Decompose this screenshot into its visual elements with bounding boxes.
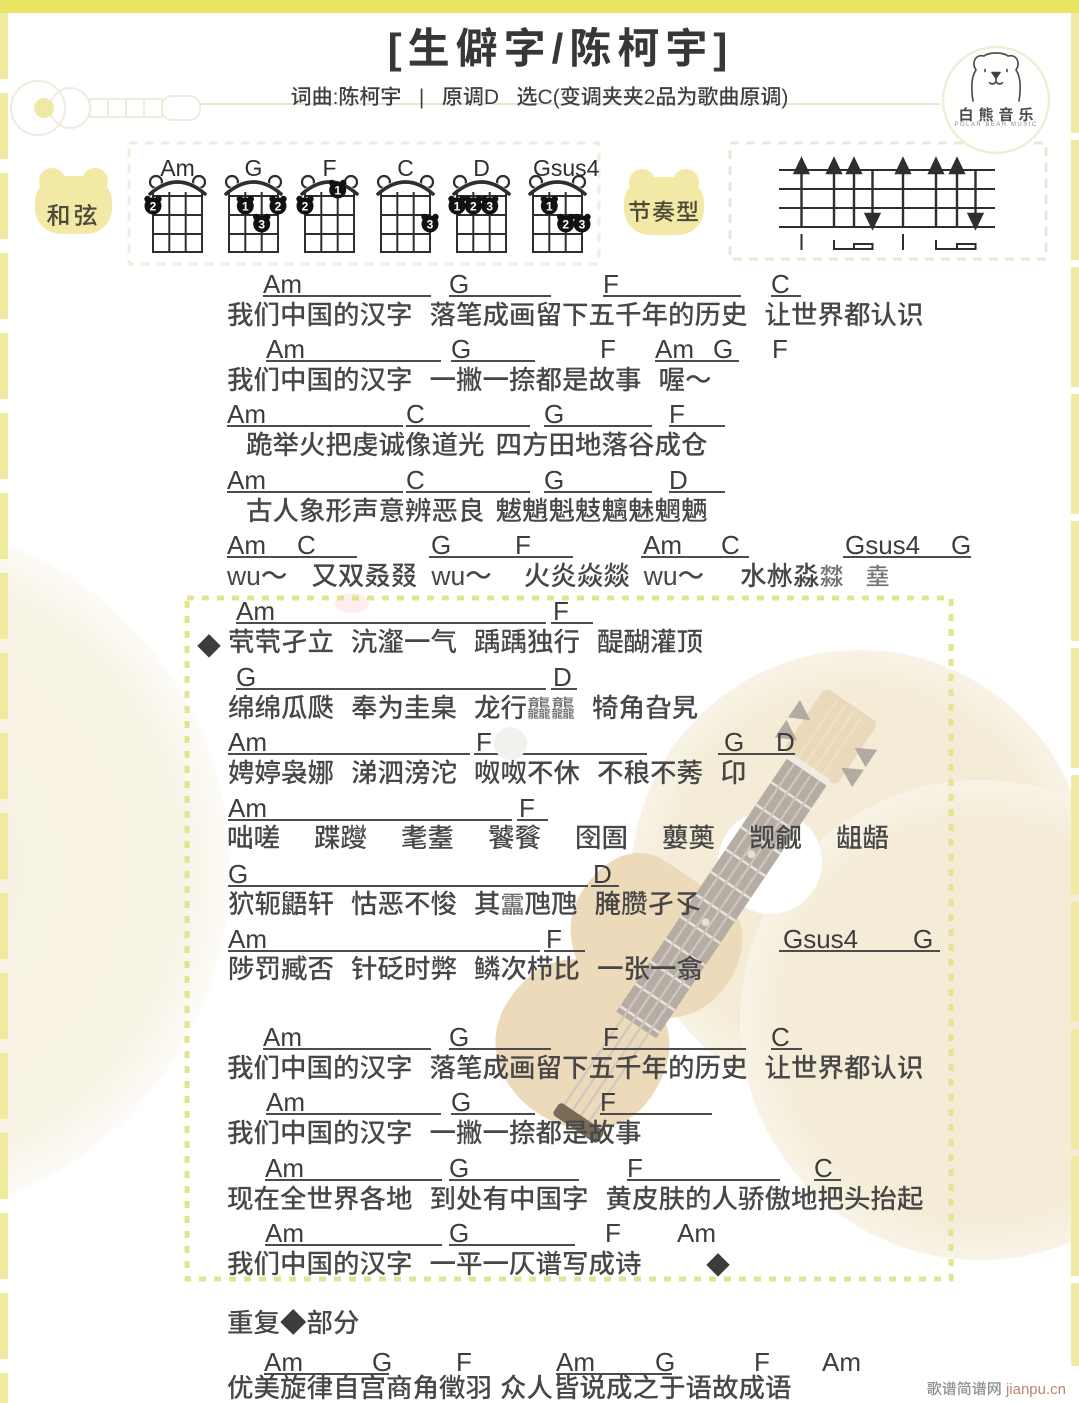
svg-text:2: 2 xyxy=(275,200,282,214)
svg-text:3: 3 xyxy=(579,218,586,232)
svg-text:1: 1 xyxy=(454,200,461,214)
svg-text:2: 2 xyxy=(562,218,569,232)
svg-text:2: 2 xyxy=(150,200,157,214)
svg-text:1: 1 xyxy=(334,184,341,198)
svg-text:3: 3 xyxy=(486,200,493,214)
svg-text:2: 2 xyxy=(302,200,309,214)
svg-text:3: 3 xyxy=(427,218,434,232)
svg-text:1: 1 xyxy=(546,200,553,214)
svg-text:3: 3 xyxy=(258,218,265,232)
svg-text:2: 2 xyxy=(470,200,477,214)
svg-text:1: 1 xyxy=(242,200,249,214)
